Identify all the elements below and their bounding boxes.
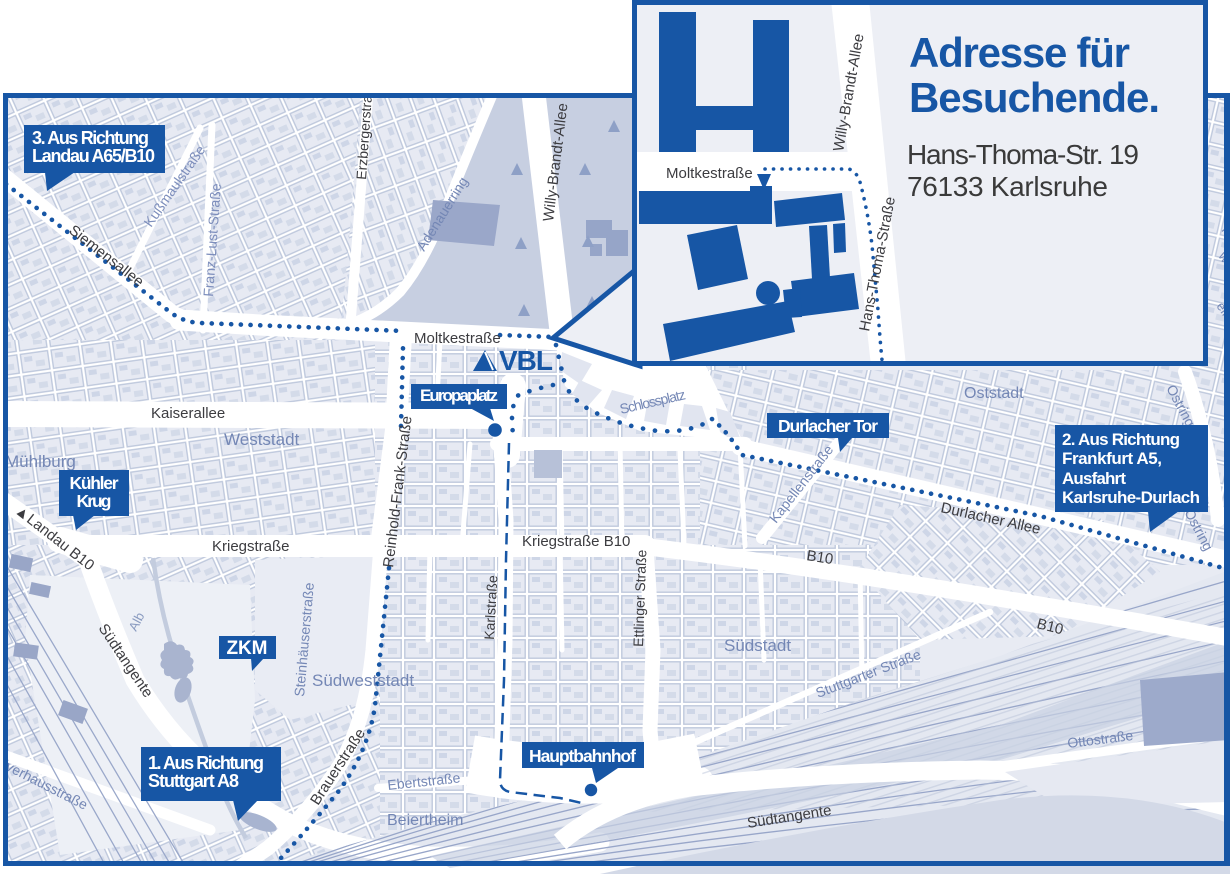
svg-text:Kaiserallee: Kaiserallee [151, 405, 225, 422]
svg-text:Landau A65/B10: Landau A65/B10 [32, 146, 155, 166]
svg-text:Krug: Krug [77, 491, 112, 511]
svg-text:Karlstraße: Karlstraße [481, 575, 500, 641]
svg-text:Karlsruhe-Durlach: Karlsruhe-Durlach [1062, 488, 1200, 507]
svg-text:Oststadt: Oststadt [964, 385, 1024, 402]
svg-text:Ausfahrt: Ausfahrt [1062, 469, 1126, 488]
svg-text:Kriegstraße B10: Kriegstraße B10 [522, 533, 630, 550]
svg-text:Hans-Thoma-Str. 19: Hans-Thoma-Str. 19 [907, 139, 1139, 170]
svg-text:Hauptbahnhof: Hauptbahnhof [529, 746, 636, 766]
svg-text:Adresse für: Adresse für [909, 29, 1130, 76]
svg-text:VBL: VBL [499, 345, 553, 376]
svg-text:Südstadt: Südstadt [724, 636, 791, 655]
svg-text:Kühler: Kühler [70, 473, 119, 493]
svg-text:1. Aus Richtung: 1. Aus Richtung [148, 753, 264, 773]
svg-text:Ettlinger Straße: Ettlinger Straße [630, 549, 649, 647]
svg-text:ZKM: ZKM [227, 638, 268, 659]
svg-text:Frankfurt A5,: Frankfurt A5, [1062, 449, 1162, 468]
svg-text:Durlacher Tor: Durlacher Tor [778, 416, 878, 436]
svg-text:76133 Karlsruhe: 76133 Karlsruhe [907, 171, 1108, 202]
svg-text:Stuttgart A8: Stuttgart A8 [148, 771, 239, 791]
svg-text:Moltkestraße: Moltkestraße [666, 165, 753, 182]
svg-text:Kriegstraße: Kriegstraße [212, 538, 290, 555]
svg-text:Südweststadt: Südweststadt [312, 671, 414, 690]
svg-text:Besuchende.: Besuchende. [909, 74, 1160, 121]
svg-text:Europaplatz: Europaplatz [420, 386, 498, 405]
svg-text:Beiertheim: Beiertheim [387, 812, 463, 829]
svg-text:Mühlburg: Mühlburg [5, 452, 76, 471]
svg-text:Moltkestraße: Moltkestraße [414, 330, 501, 347]
svg-text:Weststadt: Weststadt [224, 430, 300, 449]
svg-text:3. Aus Richtung: 3. Aus Richtung [32, 128, 149, 148]
svg-text:2. Aus Richtung: 2. Aus Richtung [1062, 430, 1180, 449]
